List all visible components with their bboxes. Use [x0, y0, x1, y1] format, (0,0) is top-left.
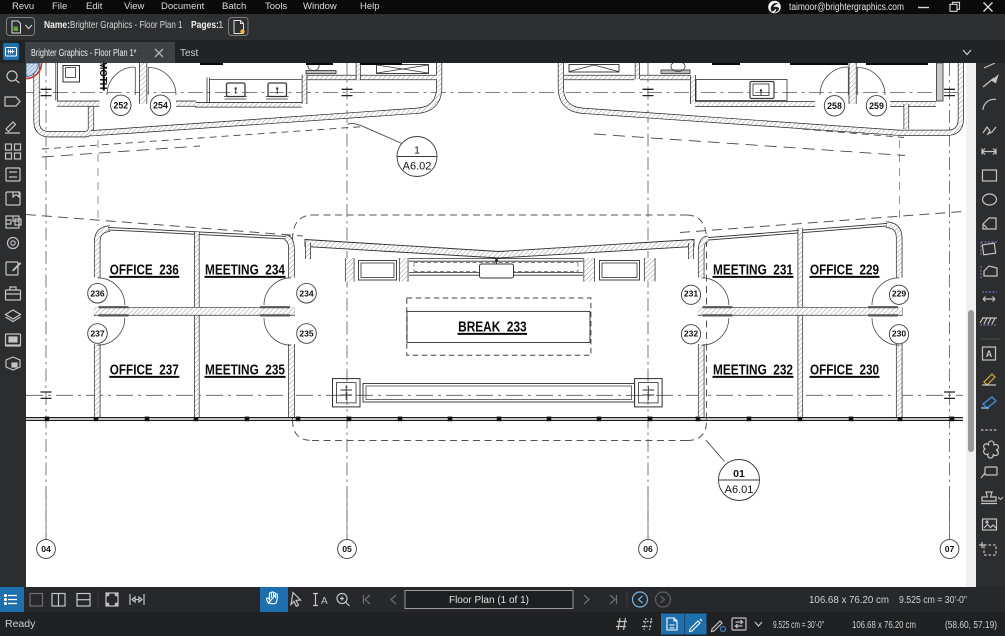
svg-text:229: 229 [892, 288, 907, 298]
svg-text:236: 236 [90, 288, 105, 298]
svg-text:A6.02: A6.02 [403, 161, 432, 173]
svg-text:258: 258 [827, 101, 842, 111]
svg-text:06: 06 [643, 544, 653, 554]
svg-text:A: A [321, 596, 328, 607]
svg-text:1: 1 [414, 145, 420, 157]
svg-text:01: 01 [733, 468, 745, 480]
svg-text:106.68 x 76.20 cm: 106.68 x 76.20 cm [809, 595, 889, 606]
svg-text:04: 04 [41, 544, 51, 554]
svg-text:BREAK 233: BREAK 233 [458, 318, 527, 335]
svg-text:237: 237 [90, 329, 105, 339]
svg-text:259: 259 [869, 101, 884, 111]
svg-text:230: 230 [892, 329, 907, 339]
svg-text:9.525 cm = 30'-0": 9.525 cm = 30'-0" [899, 595, 967, 606]
svg-text:05: 05 [342, 544, 352, 554]
svg-text:07: 07 [945, 544, 955, 554]
svg-text:A: A [986, 349, 993, 359]
svg-text:252: 252 [113, 101, 128, 111]
svg-text:235: 235 [299, 329, 314, 339]
svg-text:231: 231 [684, 288, 699, 298]
svg-text:232: 232 [684, 329, 699, 339]
svg-text:Floor Plan (1 of 1): Floor Plan (1 of 1) [449, 595, 529, 606]
svg-text:9.525 cm = 30'-0": 9.525 cm = 30'-0" [773, 620, 824, 631]
svg-text:106.68 x 76.20 cm: 106.68 x 76.20 cm [852, 620, 916, 631]
svg-text:234: 234 [299, 288, 314, 298]
svg-text:254: 254 [153, 101, 168, 111]
svg-text:(58.60, 57.19): (58.60, 57.19) [945, 620, 997, 631]
svg-text:A6.01: A6.01 [725, 484, 754, 496]
svg-text:MOTH: MOTH [97, 63, 108, 90]
